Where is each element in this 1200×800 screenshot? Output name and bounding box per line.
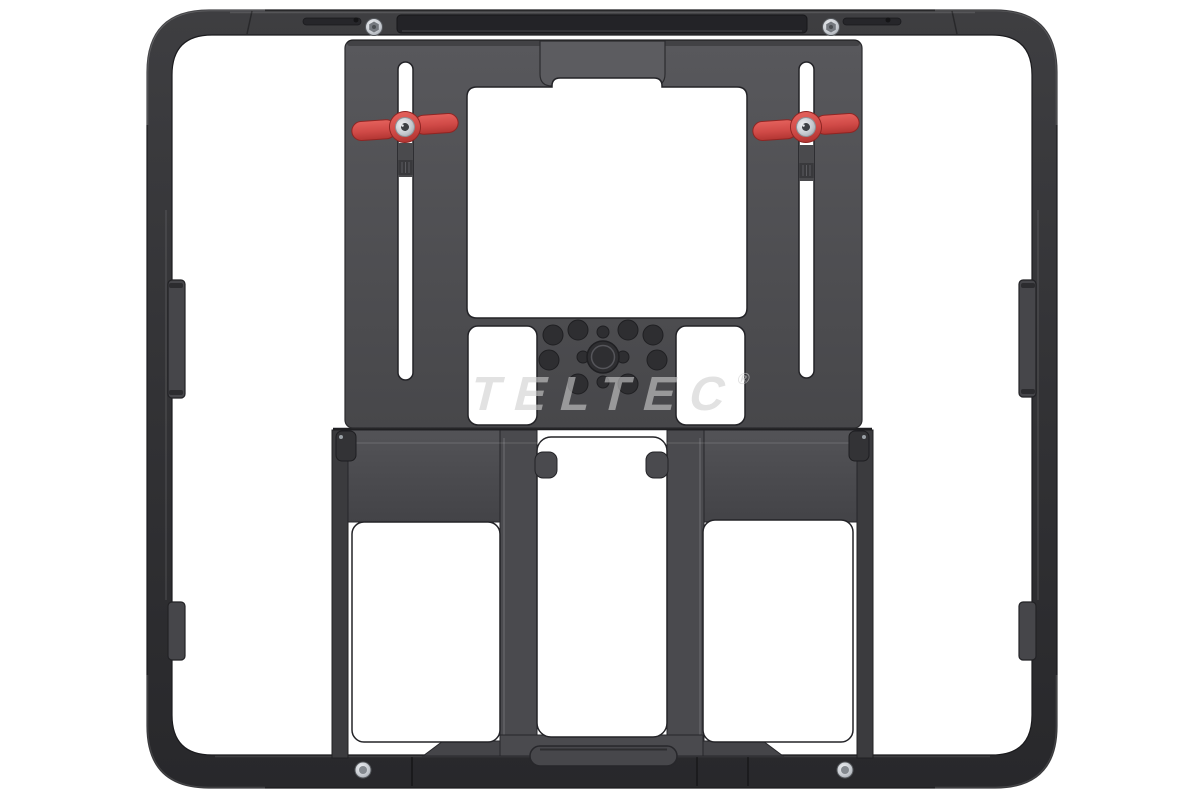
stand-center-cutout (537, 437, 667, 737)
stand-window-left (352, 522, 500, 742)
port-cover-right-upper (1019, 280, 1036, 397)
thread-hole (568, 320, 588, 340)
port-cover-left-upper (168, 280, 185, 398)
port-cover-left-lower (168, 602, 185, 660)
hex-screw (366, 19, 383, 36)
stand-leg-left (500, 430, 537, 752)
pin-hole (886, 18, 891, 23)
stand-window-right (703, 520, 853, 742)
adjustment-slot-right (799, 62, 814, 378)
cold-shoe-slot (843, 18, 901, 25)
hinge-knuckle (849, 431, 869, 461)
thread-hole (643, 325, 663, 345)
hinge-pin (339, 435, 343, 439)
stand-strut-right (857, 430, 873, 758)
watermark-text: TELTEC (465, 368, 745, 421)
hex-screw (823, 19, 840, 36)
watermark: TELTEC ® (465, 368, 752, 421)
pin-hole (354, 18, 359, 23)
bottom-screw (355, 762, 371, 778)
cutout-shoulder (535, 452, 557, 478)
cold-shoe-slot (303, 18, 361, 25)
thread-hole (543, 325, 563, 345)
port-cover-right-lower (1019, 602, 1036, 660)
tablet-cage-illustration: TELTEC ® (0, 0, 1200, 800)
hinge-knuckle (336, 431, 356, 461)
product-photo: TELTEC ® (0, 0, 1200, 800)
adjustment-slot-left (398, 62, 413, 380)
device-window (467, 78, 747, 318)
stand-strut-left (332, 430, 348, 758)
thread-hole (618, 320, 638, 340)
cutout-shoulder (646, 452, 668, 478)
bottom-screw (837, 762, 853, 778)
hinge-pin (862, 435, 866, 439)
stand-leg-right (667, 430, 704, 752)
thread-hole (597, 326, 609, 338)
